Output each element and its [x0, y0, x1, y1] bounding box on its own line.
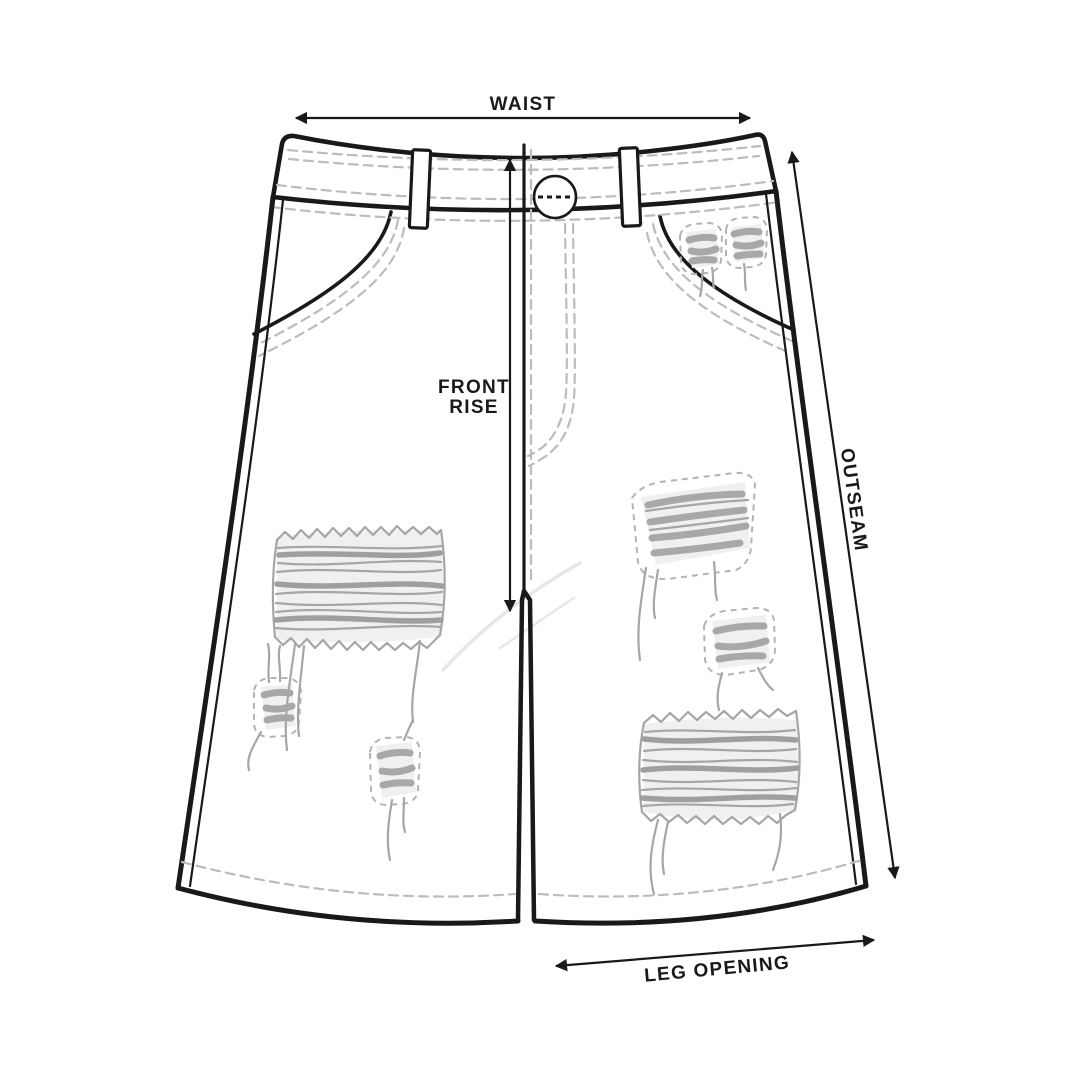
- shorts-garment: [178, 133, 866, 923]
- canvas: WAIST FRONT RISE OUTSEAM LEG OPENING: [0, 0, 1080, 1080]
- inseam-right: [524, 591, 534, 920]
- belt-loop-left: [409, 150, 430, 229]
- distress-patch-large-right: [639, 709, 799, 824]
- waistband-button: [534, 176, 576, 218]
- denim-shorts-flat-sketch: WAIST FRONT RISE OUTSEAM LEG OPENING: [0, 0, 1080, 1080]
- dimension-leg-opening: LEG OPENING: [556, 940, 874, 987]
- front-rise-label-line2: RISE: [449, 397, 499, 418]
- dimension-waist: WAIST: [296, 94, 750, 118]
- belt-loop-right: [619, 148, 640, 227]
- front-rise-label-line1: FRONT: [438, 377, 510, 398]
- waist-label: WAIST: [490, 94, 557, 115]
- distress-patch-large-left: [273, 526, 445, 650]
